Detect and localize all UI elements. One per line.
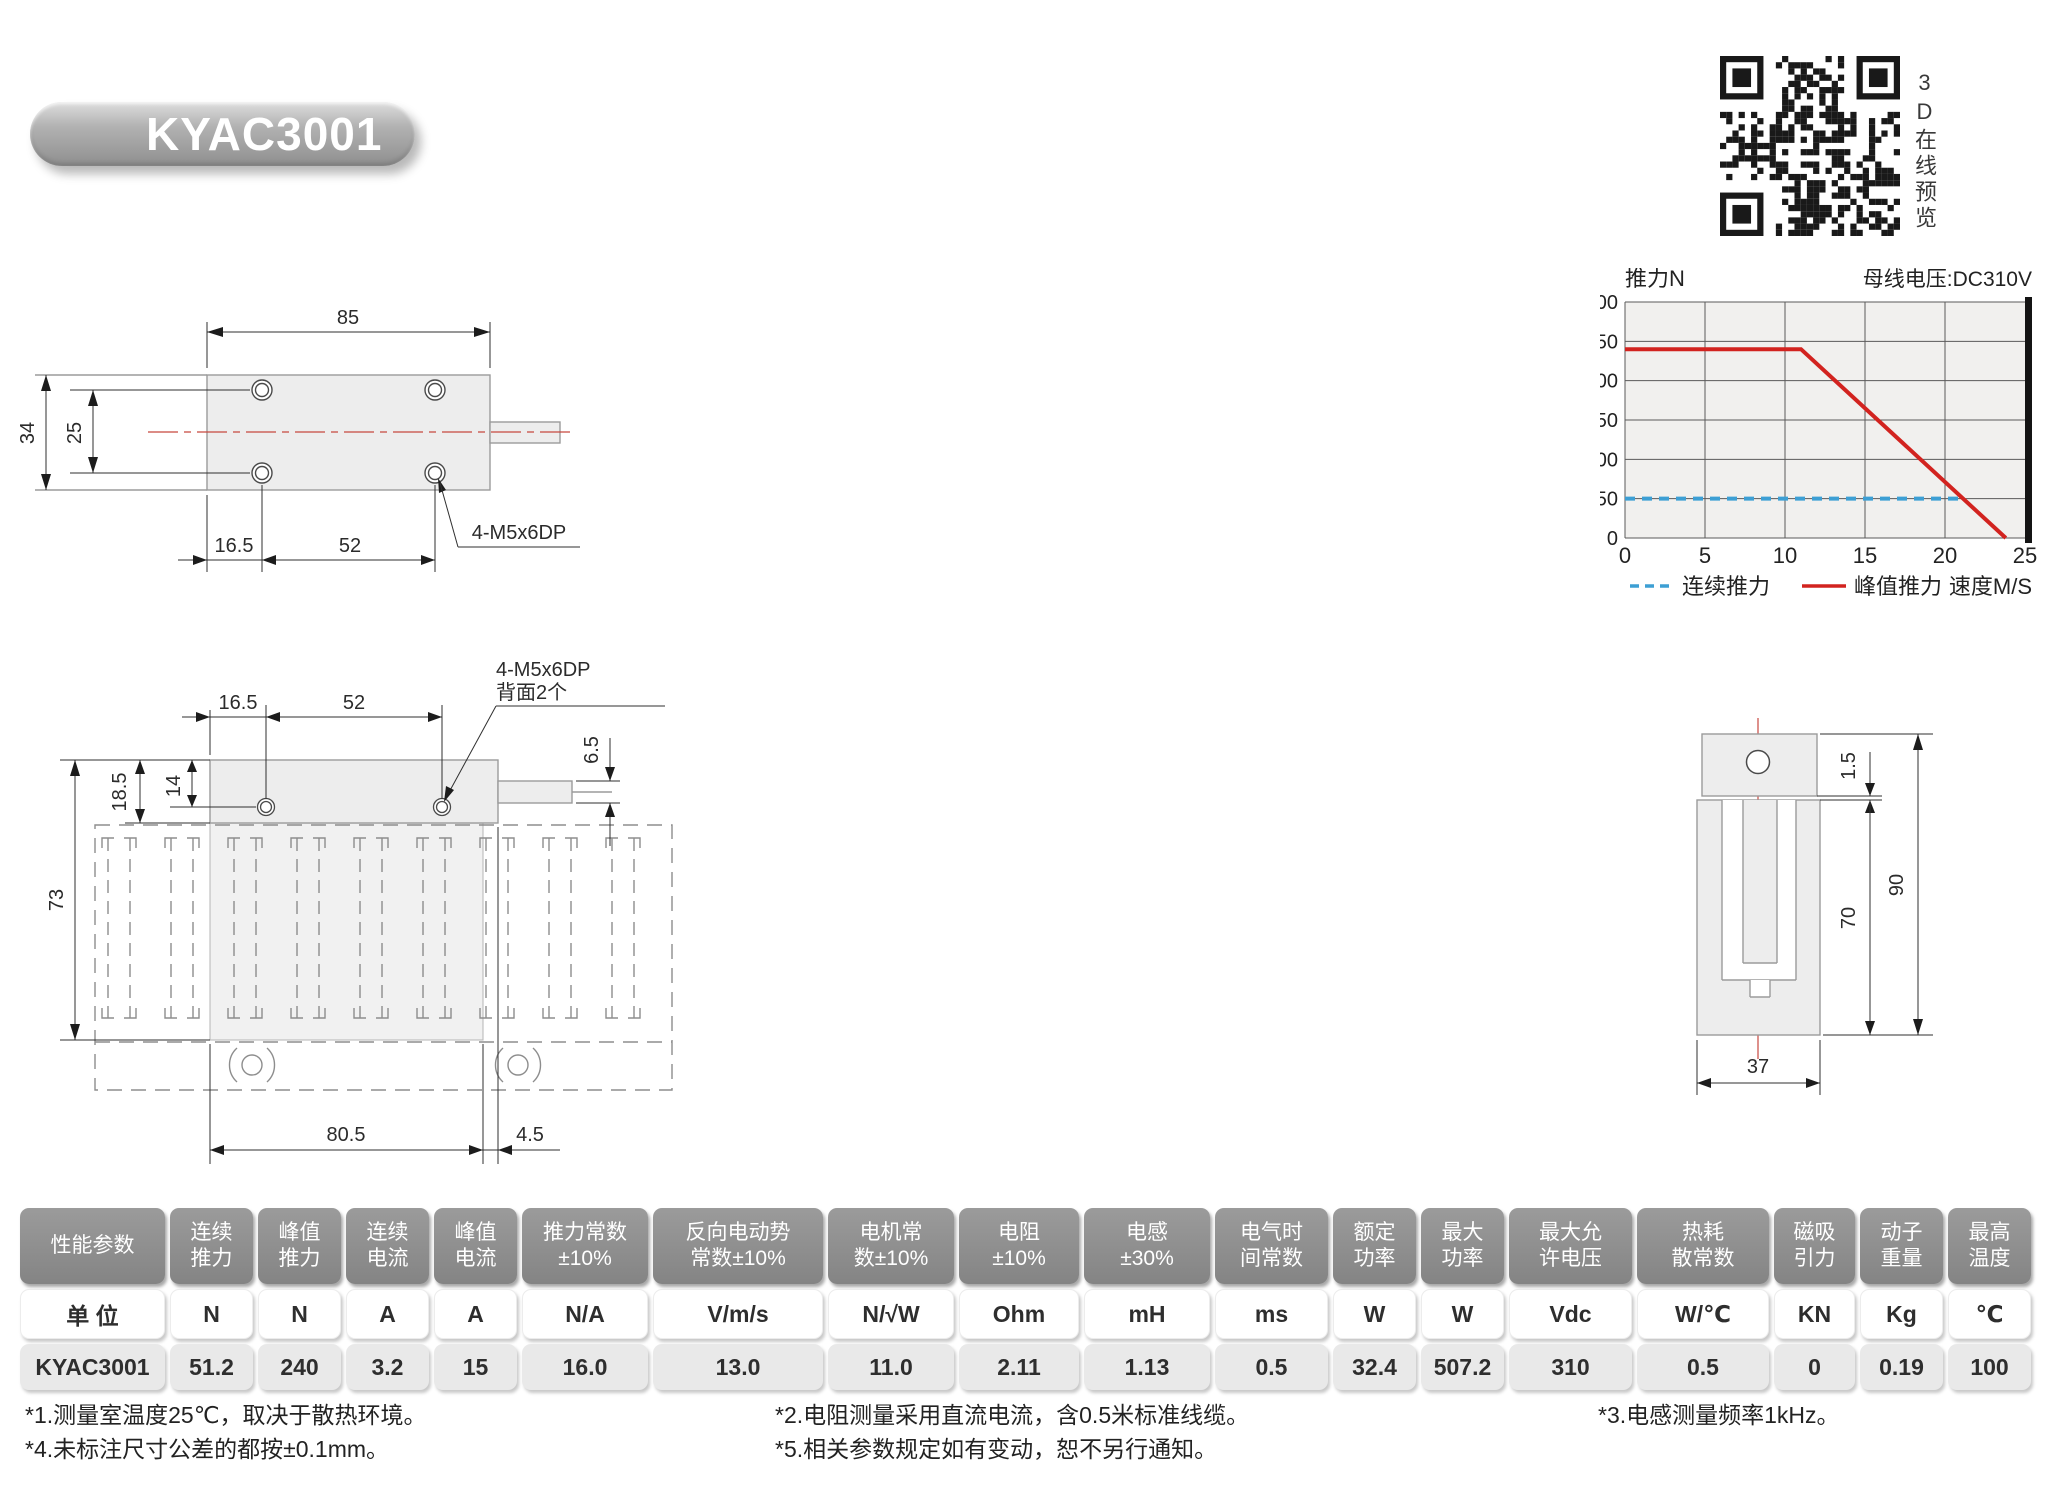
qr-module <box>1838 118 1844 124</box>
qr-module <box>1801 224 1807 230</box>
forcer-footprint <box>210 823 483 1040</box>
qr-module <box>1776 137 1782 143</box>
qr-module <box>1813 143 1819 149</box>
qr-module <box>1788 230 1794 236</box>
qr-module <box>1832 193 1838 199</box>
qr-module <box>1739 155 1745 161</box>
qr-module <box>1838 137 1844 143</box>
table-column: 热耗 散常数W/℃0.5 <box>1637 1208 1769 1390</box>
table-column: 最高 温度℃100 <box>1948 1208 2031 1390</box>
qr-module <box>1794 199 1800 205</box>
qr-module <box>1807 199 1813 205</box>
x-tick-label: 10 <box>1773 543 1797 568</box>
qr-module <box>1739 137 1745 143</box>
qr-module <box>1881 174 1887 180</box>
table-header-cell: 电感 ±30% <box>1084 1208 1210 1284</box>
qr-module <box>1757 143 1763 149</box>
table-header-cell: 磁吸 引力 <box>1774 1208 1855 1284</box>
dim-total-h: 90 <box>1886 874 1908 896</box>
qr-module <box>1782 186 1788 192</box>
qr-module <box>1794 87 1800 93</box>
qr-module <box>1894 124 1900 130</box>
table-value-cell: 11.0 <box>828 1344 954 1390</box>
qr-module <box>1850 130 1856 136</box>
qr-module <box>1844 118 1850 124</box>
qr-module <box>1850 118 1856 124</box>
y-tick-label: 150 <box>1600 410 1618 432</box>
qr-module <box>1888 180 1894 186</box>
dim-shaft-gap: 4.5 <box>516 1124 544 1146</box>
table-header-cell: 最大允 许电压 <box>1509 1208 1632 1284</box>
qr-module <box>1813 81 1819 87</box>
table-value-cell: 507.2 <box>1421 1344 1504 1390</box>
x-tick-label: 20 <box>1933 543 1957 568</box>
qr-module <box>1757 118 1763 124</box>
qr-module <box>1751 124 1757 130</box>
qr-module <box>1751 162 1757 168</box>
qr-module <box>1720 162 1726 168</box>
qr-module <box>1782 99 1788 105</box>
qr-module <box>1807 186 1813 192</box>
qr-module <box>1881 230 1887 236</box>
qr-module <box>1894 112 1900 118</box>
qr-module <box>1863 168 1869 174</box>
chart-voltage-note: 母线电压:DC310V <box>1863 268 2032 291</box>
shaft <box>498 781 572 803</box>
qr-module <box>1807 230 1813 236</box>
qr-module <box>1770 174 1776 180</box>
qr-module <box>1838 62 1844 68</box>
qr-module <box>1894 149 1900 155</box>
qr-module <box>1832 93 1838 99</box>
qr-module <box>1763 143 1769 149</box>
qr-module <box>1801 62 1807 68</box>
qr-module <box>1788 186 1794 192</box>
dim-width: 85 <box>337 307 359 329</box>
qr-module <box>1857 217 1863 223</box>
table-column: 最大 功率W507.2 <box>1421 1208 1504 1390</box>
qr-module <box>1801 174 1807 180</box>
table-unit-cell: N/√W <box>828 1289 954 1339</box>
qr-module <box>1832 118 1838 124</box>
qr-code-icon <box>1720 56 1900 236</box>
qr-module <box>1776 112 1782 118</box>
qr-module <box>1869 118 1875 124</box>
qr-module <box>1850 124 1856 130</box>
qr-module <box>1807 193 1813 199</box>
qr-module <box>1813 180 1819 186</box>
qr-module <box>1857 230 1863 236</box>
qr-module <box>1782 130 1788 136</box>
qr-module <box>1838 224 1844 230</box>
x-tick-label: 15 <box>1853 543 1877 568</box>
qr-module <box>1776 224 1782 230</box>
qr-module <box>1794 112 1800 118</box>
table-unit-cell: A <box>434 1289 517 1339</box>
qr-module <box>1794 93 1800 99</box>
qr-module <box>1832 162 1838 168</box>
qr-module <box>1832 99 1838 105</box>
qr-module <box>1881 118 1887 124</box>
dim-shaft-offset: 6.5 <box>581 736 603 764</box>
qr-module <box>1832 155 1838 161</box>
qr-module <box>1875 199 1881 205</box>
qr-module <box>1838 174 1844 180</box>
qr-module <box>1794 81 1800 87</box>
qr-module <box>1819 87 1825 93</box>
dim-body-h: 18.5 <box>109 773 131 812</box>
qr-module <box>1770 137 1776 143</box>
qr-module <box>1850 230 1856 236</box>
thread-callout: 4-M5x6DP <box>472 522 566 544</box>
qr-module <box>1782 168 1788 174</box>
qr-module <box>1857 174 1863 180</box>
qr-module <box>1832 230 1838 236</box>
dim-left-offset: 16.5 <box>219 692 258 714</box>
qr-module <box>1819 211 1825 217</box>
table-unit-cell: N/A <box>522 1289 648 1339</box>
dim-body-w: 80.5 <box>327 1124 366 1146</box>
qr-module <box>1838 56 1844 62</box>
qr-module <box>1732 155 1738 161</box>
x-tick-label: 25 <box>2013 543 2037 568</box>
qr-module <box>1894 224 1900 230</box>
plate-hole <box>1747 751 1770 774</box>
qr-module <box>1770 149 1776 155</box>
qr-module <box>1807 124 1813 130</box>
x-tick-label: 0 <box>1619 543 1631 568</box>
thread-callout-line1: 4-M5x6DP <box>496 659 590 681</box>
qr-module <box>1763 155 1769 161</box>
qr-module <box>1788 62 1794 68</box>
qr-finder-core <box>1869 68 1888 87</box>
model-title: KYAC3001 <box>30 102 415 166</box>
qr-module <box>1776 124 1782 130</box>
qr-module <box>1732 130 1738 136</box>
table-unit-cell: ms <box>1215 1289 1328 1339</box>
qr-module <box>1813 211 1819 217</box>
qr-module <box>1794 62 1800 68</box>
y-tick-label: 300 <box>1600 292 1618 314</box>
qr-module <box>1826 205 1832 211</box>
qr-module <box>1801 68 1807 74</box>
qr-module <box>1782 112 1788 118</box>
qr-module <box>1751 112 1757 118</box>
qr-module <box>1739 124 1745 130</box>
table-unit-cell: 单 位 <box>20 1289 165 1339</box>
qr-module <box>1807 205 1813 211</box>
qr-module <box>1770 162 1776 168</box>
qr-module <box>1844 205 1850 211</box>
qr-module <box>1869 137 1875 143</box>
table-value-cell: 15 <box>434 1344 517 1390</box>
qr-module <box>1788 217 1794 223</box>
qr-module <box>1776 230 1782 236</box>
qr-module <box>1838 205 1844 211</box>
table-value-cell: 310 <box>1509 1344 1632 1390</box>
qr-module <box>1869 149 1875 155</box>
qr-module <box>1788 124 1794 130</box>
y-tick-label: 250 <box>1600 331 1618 353</box>
table-value-cell: 1.13 <box>1084 1344 1210 1390</box>
qr-module <box>1794 224 1800 230</box>
qr-module <box>1726 174 1732 180</box>
qr-module <box>1838 75 1844 81</box>
qr-module <box>1801 118 1807 124</box>
qr-module <box>1807 62 1813 68</box>
table-header-cell: 性能参数 <box>20 1208 165 1284</box>
qr-module <box>1732 162 1738 168</box>
table-header-cell: 热耗 散常数 <box>1637 1208 1769 1284</box>
qr-module <box>1869 155 1875 161</box>
table-unit-cell: Vdc <box>1509 1289 1632 1339</box>
qr-module <box>1819 68 1825 74</box>
qr-module <box>1801 87 1807 93</box>
qr-module <box>1782 87 1788 93</box>
qr-module <box>1813 162 1819 168</box>
chart-y-title: 推力N <box>1625 268 1685 291</box>
qr-module <box>1826 168 1832 174</box>
qr-module <box>1888 168 1894 174</box>
qr-module <box>1832 137 1838 143</box>
qr-module <box>1726 162 1732 168</box>
qr-module <box>1726 112 1732 118</box>
qr-module <box>1838 193 1844 199</box>
drawing-front-view: 16.5 52 4-M5x6DP 背面2个 6.5 18.5 14 73 80.… <box>20 620 720 1170</box>
table-unit-cell: KN <box>1774 1289 1855 1339</box>
dim-hole-span: 52 <box>343 692 365 714</box>
qr-module <box>1757 168 1763 174</box>
table-header-cell: 电阻 ±10% <box>959 1208 1079 1284</box>
thrust-speed-chart: 0501001502002503000510152025推力N母线电压:DC31… <box>1600 268 2050 603</box>
qr-module <box>1850 174 1856 180</box>
qr-module <box>1869 211 1875 217</box>
qr-module <box>1869 143 1875 149</box>
qr-module <box>1788 205 1794 211</box>
table-header-cell: 反向电动势 常数±10% <box>653 1208 823 1284</box>
table-value-cell: 240 <box>258 1344 341 1390</box>
qr-module <box>1813 68 1819 74</box>
note-5: *5.相关参数规定如有变动，恕不另行通知。 <box>775 1430 1217 1464</box>
table-column: 峰值 推力N240 <box>258 1208 341 1390</box>
qr-module <box>1788 106 1794 112</box>
dim-width: 37 <box>1747 1056 1769 1078</box>
qr-module <box>1826 112 1832 118</box>
table-unit-cell: N <box>258 1289 341 1339</box>
qr-module <box>1888 112 1894 118</box>
track-screw-arc <box>229 1048 237 1082</box>
table-unit-cell: V/m/s <box>653 1289 823 1339</box>
qr-module <box>1801 205 1807 211</box>
qr-module <box>1832 149 1838 155</box>
table-value-cell: 16.0 <box>522 1344 648 1390</box>
table-unit-cell: N <box>170 1289 253 1339</box>
qr-module <box>1894 180 1900 186</box>
qr-module <box>1751 174 1757 180</box>
qr-module <box>1751 155 1757 161</box>
track-screw-arc <box>267 1048 275 1082</box>
qr-module <box>1801 211 1807 217</box>
qr-module <box>1794 217 1800 223</box>
qr-module <box>1782 137 1788 143</box>
qr-module <box>1807 112 1813 118</box>
table-value-cell: 100 <box>1948 1344 2031 1390</box>
table-value-cell: 0.5 <box>1637 1344 1769 1390</box>
qr-finder-core <box>1732 205 1751 224</box>
datasheet-page: { "page": { "title_badge": "KYAC3001" },… <box>0 0 2050 1490</box>
qr-module <box>1807 75 1813 81</box>
qr-module <box>1863 186 1869 192</box>
qr-module <box>1788 137 1794 143</box>
table-unit-cell: W/℃ <box>1637 1289 1769 1339</box>
qr-module <box>1832 81 1838 87</box>
table-header-cell: 最大 功率 <box>1421 1208 1504 1284</box>
qr-module <box>1739 112 1745 118</box>
table-column: 峰值 电流A15 <box>434 1208 517 1390</box>
qr-module <box>1875 162 1881 168</box>
qr-module <box>1869 124 1875 130</box>
qr-module <box>1863 155 1869 161</box>
qr-module <box>1807 162 1813 168</box>
qr-module <box>1739 143 1745 149</box>
qr-module <box>1720 112 1726 118</box>
qr-module <box>1838 87 1844 93</box>
qr-module <box>1888 118 1894 124</box>
qr-module <box>1745 143 1751 149</box>
qr-module <box>1826 137 1832 143</box>
table-header-cell: 最高 温度 <box>1948 1208 2031 1284</box>
legend-label: 峰值推力 <box>1854 574 1942 599</box>
qr-module <box>1794 230 1800 236</box>
qr-module <box>1794 193 1800 199</box>
qr-module <box>1801 75 1807 81</box>
qr-module <box>1888 205 1894 211</box>
x-tick-label: 5 <box>1699 543 1711 568</box>
qr-module <box>1813 224 1819 230</box>
qr-module <box>1863 174 1869 180</box>
qr-module <box>1782 56 1788 62</box>
table-header-cell: 动子 重量 <box>1860 1208 1943 1284</box>
table-column: 额定 功率W32.4 <box>1333 1208 1416 1390</box>
qr-module <box>1770 124 1776 130</box>
track-screw <box>242 1055 262 1075</box>
qr-module <box>1794 174 1800 180</box>
qr-module <box>1788 130 1794 136</box>
qr-module <box>1844 149 1850 155</box>
table-column: 电感 ±30%mH1.13 <box>1084 1208 1210 1390</box>
thread-callout-line2: 背面2个 <box>496 681 567 704</box>
table-column: 最大允 许电压Vdc310 <box>1509 1208 1632 1390</box>
table-column: 连续 推力N51.2 <box>170 1208 253 1390</box>
qr-module <box>1826 75 1832 81</box>
qr-module <box>1888 174 1894 180</box>
table-value-cell: KYAC3001 <box>20 1344 165 1390</box>
motor-body <box>210 760 498 823</box>
qr-module <box>1832 217 1838 223</box>
qr-module <box>1875 217 1881 223</box>
table-unit-cell: A <box>346 1289 429 1339</box>
qr-module <box>1801 162 1807 168</box>
table-header-cell: 连续 推力 <box>170 1208 253 1284</box>
qr-module <box>1801 230 1807 236</box>
qr-module <box>1751 143 1757 149</box>
qr-module <box>1838 186 1844 192</box>
table-value-cell: 51.2 <box>170 1344 253 1390</box>
qr-module <box>1875 180 1881 186</box>
table-value-cell: 2.11 <box>959 1344 1079 1390</box>
qr-module <box>1813 137 1819 143</box>
track-screw <box>508 1055 528 1075</box>
qr-module <box>1807 149 1813 155</box>
qr-module <box>1832 106 1838 112</box>
qr-module <box>1832 130 1838 136</box>
qr-module <box>1770 143 1776 149</box>
qr-module <box>1869 130 1875 136</box>
qr-module <box>1788 68 1794 74</box>
chart-x-title: 速度M/S <box>1949 574 2032 599</box>
dim-hole-top: 14 <box>163 775 185 797</box>
qr-module <box>1826 118 1832 124</box>
qr-module <box>1844 168 1850 174</box>
table-column: 性能参数单 位KYAC3001 <box>20 1208 165 1390</box>
note-2: *2.电阻测量采用直流电流，含0.5米标准线缆。 <box>775 1396 1249 1430</box>
qr-module <box>1869 199 1875 205</box>
qr-module <box>1819 99 1825 105</box>
dim-plate-t: 1.5 <box>1838 752 1860 780</box>
qr-module <box>1863 193 1869 199</box>
qr-module <box>1844 186 1850 192</box>
dim-body-h: 70 <box>1838 907 1860 929</box>
qr-module <box>1857 205 1863 211</box>
qr-module <box>1857 186 1863 192</box>
qr-module <box>1801 106 1807 112</box>
qr-module <box>1819 180 1825 186</box>
table-value-cell: 0 <box>1774 1344 1855 1390</box>
qr-module <box>1782 93 1788 99</box>
table-value-cell: 0.5 <box>1215 1344 1328 1390</box>
qr-module <box>1782 106 1788 112</box>
table-column: 反向电动势 常数±10%V/m/s13.0 <box>653 1208 823 1390</box>
qr-module <box>1726 137 1732 143</box>
qr-module <box>1844 130 1850 136</box>
table-header-cell: 额定 功率 <box>1333 1208 1416 1284</box>
model-title-badge: KYAC3001 <box>30 102 415 166</box>
table-value-cell: 32.4 <box>1333 1344 1416 1390</box>
qr-module <box>1881 199 1887 205</box>
qr-module <box>1826 211 1832 217</box>
qr-module <box>1819 137 1825 143</box>
qr-module <box>1788 81 1794 87</box>
qr-module <box>1863 217 1869 223</box>
qr-module <box>1794 180 1800 186</box>
table-unit-cell: W <box>1333 1289 1416 1339</box>
qr-module <box>1894 174 1900 180</box>
table-header-cell: 电气时 间常数 <box>1215 1208 1328 1284</box>
qr-module <box>1819 217 1825 223</box>
qr-module <box>1782 162 1788 168</box>
qr-module <box>1757 155 1763 161</box>
qr-module <box>1794 118 1800 124</box>
y-tick-label: 100 <box>1600 449 1618 471</box>
qr-module <box>1807 211 1813 217</box>
qr-module <box>1826 56 1832 62</box>
qr-module <box>1819 93 1825 99</box>
qr-module <box>1813 199 1819 205</box>
qr-module <box>1776 162 1782 168</box>
qr-module <box>1888 224 1894 230</box>
dim-hole-span: 52 <box>339 535 361 557</box>
qr-module <box>1863 180 1869 186</box>
